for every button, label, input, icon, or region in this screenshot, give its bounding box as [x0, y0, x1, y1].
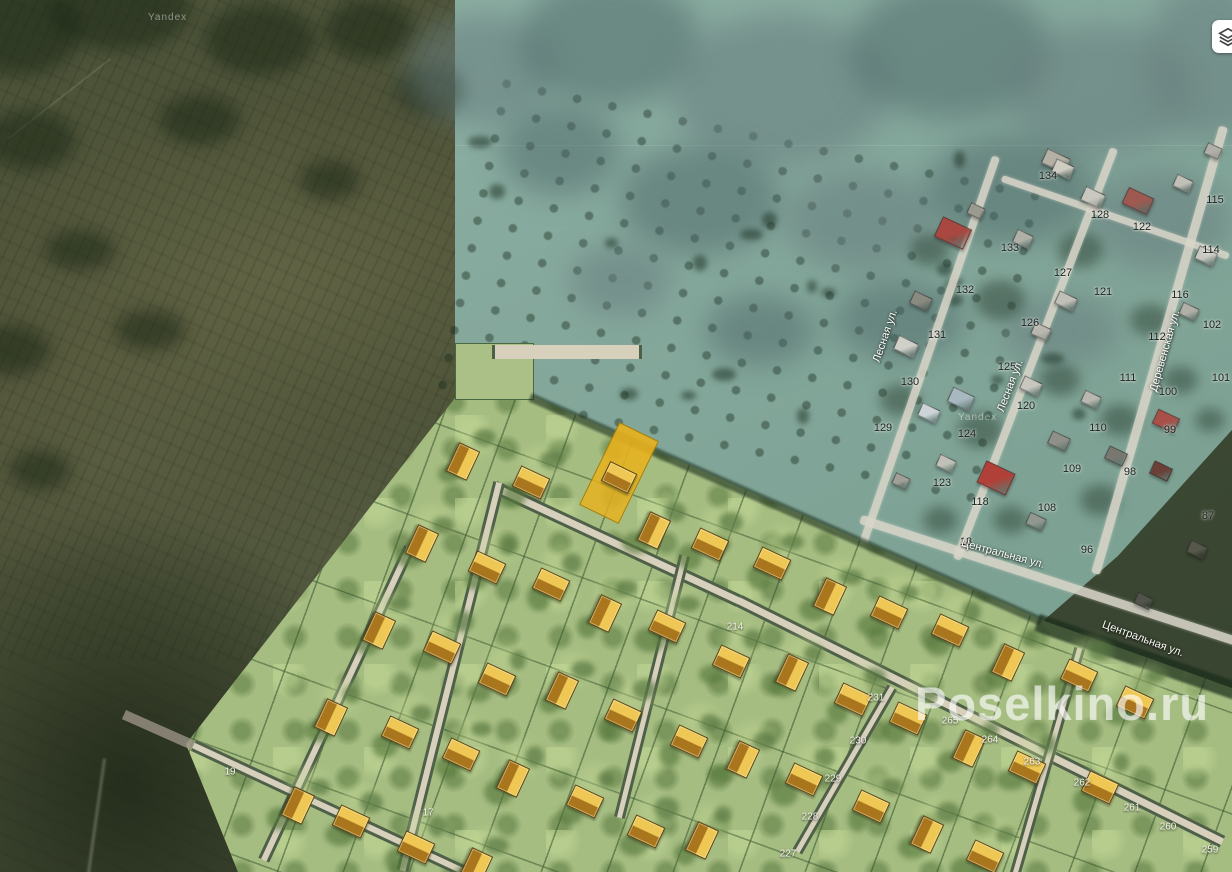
tree-blob	[962, 601, 981, 623]
house-number-label: 121	[1094, 286, 1112, 298]
house-number-label: 129	[874, 422, 892, 434]
forest-blob	[45, 230, 115, 270]
provider-watermark: Yandex	[148, 12, 187, 23]
provider-watermark: Yandex	[958, 412, 997, 423]
forest-blob	[10, 450, 70, 490]
house-number-label: 108	[1038, 502, 1056, 514]
tree-dot	[681, 391, 696, 400]
plan-road	[492, 345, 642, 359]
plot-number-label: 229	[825, 774, 842, 785]
house-number-label: 132	[956, 284, 974, 296]
house-number-label: 98	[1124, 466, 1136, 478]
village-tree-blob	[1195, 408, 1225, 432]
tree-blob	[616, 580, 637, 596]
tree-blob	[676, 596, 700, 612]
tree-blob	[360, 792, 382, 813]
house-number-label: 102	[1203, 319, 1221, 331]
forest-blob	[205, 5, 315, 75]
tree-blob	[1040, 734, 1056, 753]
house-number-label: 101	[1212, 372, 1230, 384]
village-tree-blob	[993, 506, 1028, 534]
tree-blob	[882, 778, 903, 795]
tree-blob	[411, 705, 432, 722]
house-number-label: 115	[1206, 194, 1224, 206]
tree-dot	[468, 136, 492, 148]
tree-blob	[936, 802, 960, 823]
plot-number-label: 19	[224, 767, 235, 778]
tree-blob	[815, 747, 836, 767]
house-number-label: 109	[1063, 463, 1081, 475]
forest-blob	[115, 310, 185, 350]
tree-canopy-blob	[705, 295, 815, 365]
house-number-label: 120	[1017, 400, 1035, 412]
plot-number-label: 228	[802, 812, 819, 823]
selected-plot-house	[601, 461, 638, 494]
house-number-label: 133	[1001, 242, 1019, 254]
tree-blob	[452, 611, 474, 632]
plot-number-label: 264	[982, 735, 999, 746]
tree-blob	[633, 679, 657, 699]
house-number-label: 127	[1054, 267, 1072, 279]
plot-number-label: 259	[1202, 845, 1219, 856]
house-number-label: 110	[1089, 422, 1107, 434]
tree-blob	[471, 722, 491, 737]
tree-blob	[540, 451, 565, 469]
plot-number-label: 260	[1160, 822, 1177, 833]
tree-blob	[571, 661, 595, 678]
tree-dot	[489, 184, 506, 199]
tree-blob	[700, 714, 720, 732]
house-number-label: 124	[958, 428, 976, 440]
house-number-label: 128	[1091, 209, 1109, 221]
tree-dot	[954, 151, 965, 168]
brand-watermark: Poselkino.ru	[915, 676, 1209, 731]
plot-number-label: 231	[868, 693, 885, 704]
village-tree-blob	[975, 280, 1025, 320]
village-tree-blob	[923, 506, 958, 534]
tree-blob	[1021, 630, 1038, 647]
village-tree-blob	[1040, 364, 1080, 396]
house-number-label: 118	[971, 496, 989, 508]
tree-blob	[900, 585, 919, 600]
tree-blob	[343, 686, 361, 703]
plot-number-label: 263	[1024, 757, 1041, 768]
house-number-label: 126	[1021, 317, 1039, 329]
tree-dot	[762, 212, 777, 228]
tree-blob	[996, 827, 1016, 843]
house-number-label: 130	[901, 376, 919, 388]
forest-blob	[300, 160, 360, 200]
tree-blob	[309, 779, 331, 795]
house-number-label: 122	[1133, 221, 1151, 233]
house-number-label: 87	[1202, 510, 1214, 522]
house-number-label: 114	[1202, 244, 1220, 256]
house-number-label: 116	[1171, 289, 1189, 301]
house-number-label: 96	[1081, 544, 1093, 556]
house-number-label: 100	[1159, 386, 1177, 398]
plot-number-label: 261	[1124, 803, 1141, 814]
tree-dot	[712, 368, 736, 381]
plot-number-label: 17	[422, 808, 433, 819]
plot-number-label: 227	[780, 849, 797, 860]
tree-blob	[1088, 642, 1113, 661]
tree-blob	[510, 650, 526, 670]
tree-dot	[693, 255, 707, 271]
house-number-label: 111	[1120, 372, 1137, 384]
tree-canopy-blob	[570, 245, 670, 315]
layers-stack-icon	[1217, 26, 1232, 48]
map-canvas[interactable]: 2142312302292282272652642632622612602591…	[0, 0, 1232, 872]
tree-blob	[781, 534, 804, 550]
layers-button[interactable]	[1212, 20, 1232, 53]
tree-canopy-blob	[500, 105, 620, 195]
tree-dot	[1041, 353, 1064, 364]
tree-blob	[525, 746, 544, 767]
house-number-label: 134	[1039, 170, 1057, 182]
tree-blob	[753, 732, 776, 750]
tree-blob	[804, 645, 823, 662]
tree-blob	[388, 597, 411, 611]
tree-dot	[620, 388, 638, 401]
tree-blob	[654, 797, 679, 818]
forest-blob	[160, 95, 240, 145]
tree-blob	[719, 512, 742, 532]
house-number-label: 131	[928, 329, 946, 341]
plot-number-label: 214	[727, 622, 744, 633]
house-number-label: 99	[1164, 424, 1176, 436]
tree-blob	[598, 771, 615, 787]
tree-dot	[740, 229, 762, 240]
tree-blob	[500, 536, 517, 554]
house-number-label: 123	[933, 477, 951, 489]
tree-dot	[1072, 408, 1086, 420]
tree-blob	[743, 629, 762, 649]
forest-blob	[325, 0, 415, 60]
plot-number-label: 262	[1074, 778, 1091, 789]
plot-number-label: 230	[850, 736, 867, 747]
